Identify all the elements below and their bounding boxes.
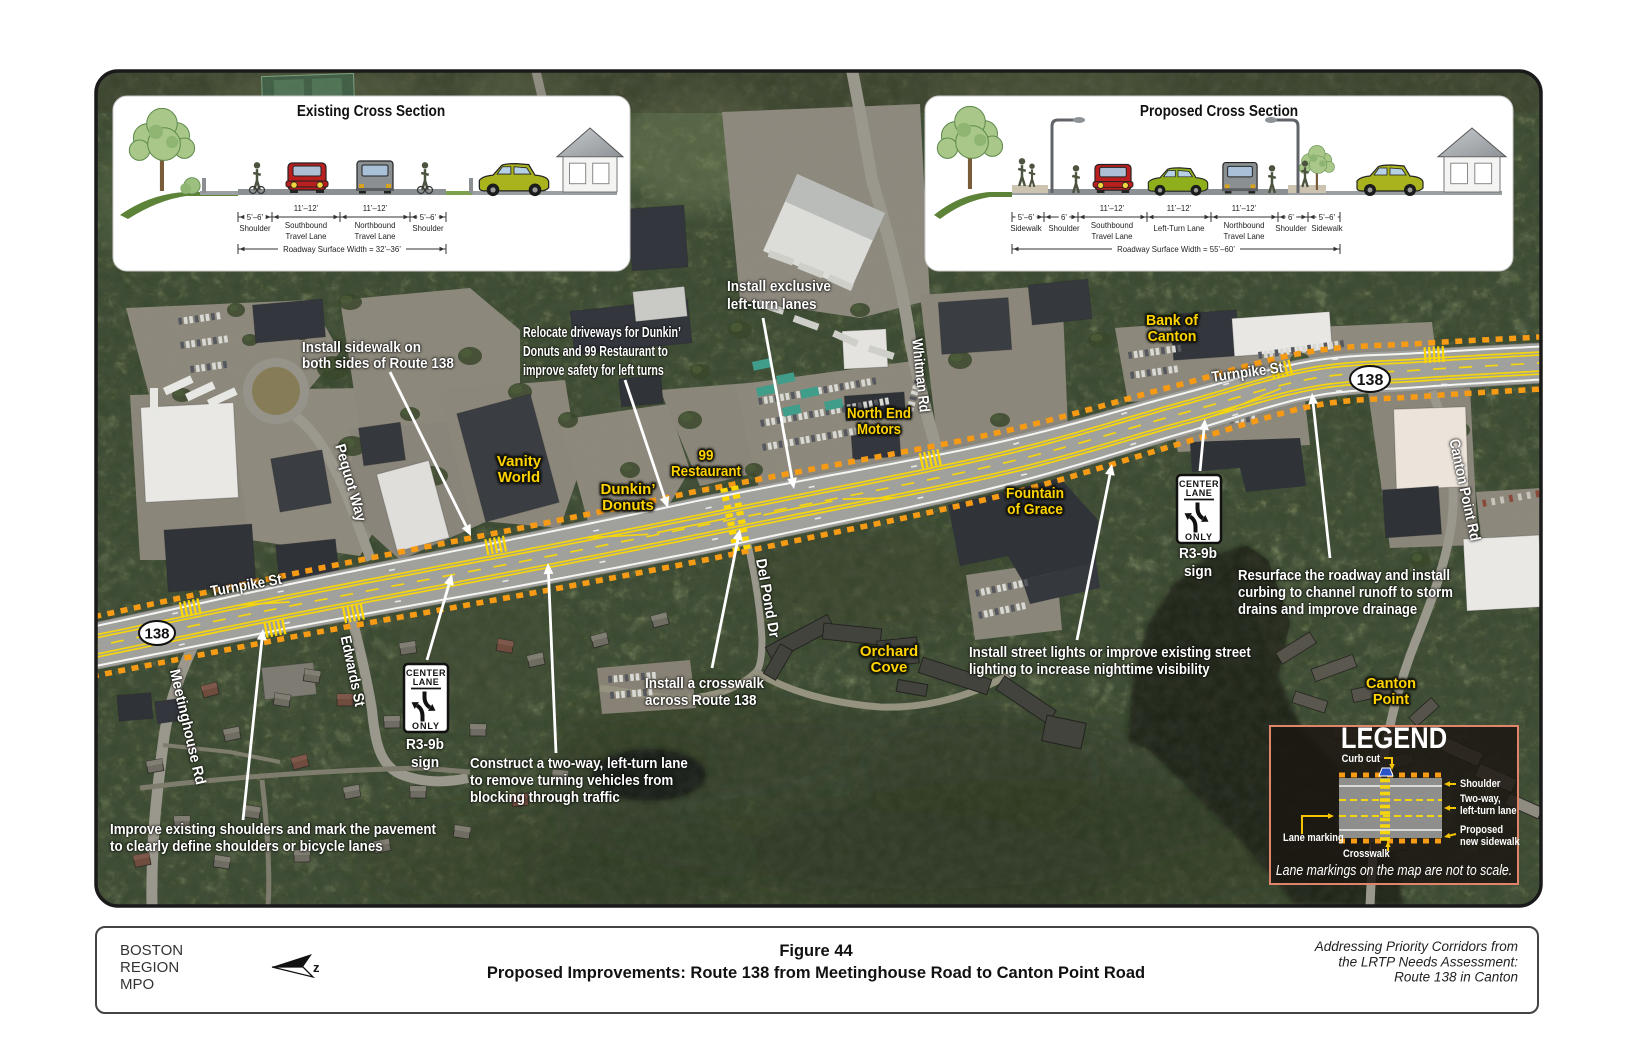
svg-text:5’–6’: 5’–6’ [247,213,264,222]
svg-text:11’–12’: 11’–12’ [363,204,388,213]
svg-text:LANE: LANE [1186,488,1212,498]
svg-text:Left-Turn Lane: Left-Turn Lane [1154,224,1205,233]
svg-text:Shoulder: Shoulder [412,224,444,233]
svg-text:R3-9bsign: R3-9bsign [1179,545,1217,580]
svg-text:Bank ofCanton: Bank ofCanton [1146,313,1198,345]
svg-text:LANE: LANE [413,677,439,687]
svg-text:Install a crosswalkacross Rout: Install a crosswalkacross Route 138 [645,675,764,709]
svg-text:R3-9bsign: R3-9bsign [406,736,444,771]
svg-text:Shoulder: Shoulder [1275,224,1307,233]
svg-text:Relocate driveways for Dunkin’: Relocate driveways for Dunkin’Donuts and… [523,323,681,378]
svg-text:138: 138 [1357,372,1384,389]
svg-text:Shoulder: Shoulder [239,224,271,233]
svg-text:Fountainof Grace: Fountainof Grace [1006,485,1064,518]
svg-text:SouthboundTravel Lane: SouthboundTravel Lane [1091,221,1134,241]
svg-text:LEGEND: LEGEND [1341,721,1447,754]
svg-text:Sidewalk: Sidewalk [1010,224,1042,233]
svg-text:SouthboundTravel Lane: SouthboundTravel Lane [285,221,328,241]
svg-text:Proposed Improvements: Route 1: Proposed Improvements: Route 138 from Me… [487,964,1145,982]
svg-text:Lane markings on the map are n: Lane markings on the map are not to scal… [1276,862,1512,878]
svg-text:Lane marking: Lane marking [1283,832,1344,844]
svg-text:5’–6’: 5’–6’ [1319,213,1336,222]
svg-text:ONLY: ONLY [1185,532,1213,542]
svg-text:CantonPoint: CantonPoint [1366,676,1416,708]
svg-text:6’: 6’ [1061,213,1067,222]
svg-text:Sidewalk: Sidewalk [1311,224,1343,233]
svg-text:11’–12’: 11’–12’ [1232,204,1257,213]
svg-text:5’–6’: 5’–6’ [420,213,437,222]
svg-text:Existing Cross Section: Existing Cross Section [297,103,445,120]
svg-text:Install exclusiveleft-turn lan: Install exclusiveleft-turn lanes [727,278,831,313]
svg-text:6’: 6’ [1288,213,1294,222]
svg-text:NorthboundTravel Lane: NorthboundTravel Lane [355,221,396,241]
svg-text:Curb cut: Curb cut [1342,753,1381,765]
svg-text:Roadway Surface Width = 32’–36: Roadway Surface Width = 32’–36’ [283,245,401,254]
svg-text:ONLY: ONLY [412,721,440,731]
svg-text:VanityWorld: VanityWorld [497,453,542,486]
svg-text:NorthboundTravel Lane: NorthboundTravel Lane [1224,221,1265,241]
svg-text:Shoulder: Shoulder [1048,224,1080,233]
svg-text:Crosswalk: Crosswalk [1343,848,1390,860]
svg-text:Shoulder: Shoulder [1460,778,1500,790]
svg-text:Dunkin’Donuts: Dunkin’Donuts [601,481,656,514]
svg-text:11’–12’: 11’–12’ [294,204,319,213]
svg-text:Figure 44: Figure 44 [779,942,853,960]
svg-text:Roadway Surface Width = 55’–60: Roadway Surface Width = 55’–60’ [1117,245,1235,254]
svg-text:11’–12’: 11’–12’ [1100,204,1125,213]
svg-text:11’–12’: 11’–12’ [1167,204,1192,213]
svg-text:Install street lights or impro: Install street lights or improve existin… [969,643,1251,677]
svg-text:z: z [313,960,320,975]
svg-text:138: 138 [144,625,169,642]
svg-text:5’–6’: 5’–6’ [1018,213,1035,222]
